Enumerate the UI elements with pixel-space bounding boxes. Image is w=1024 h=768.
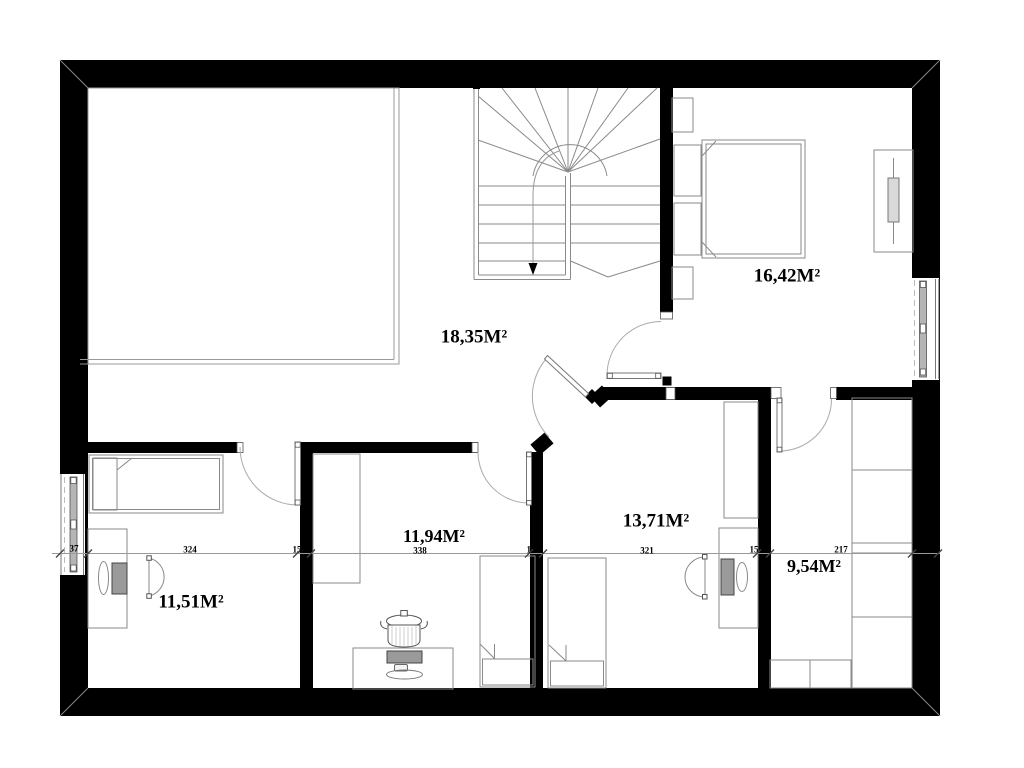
wall-between-room3-closet	[758, 387, 771, 690]
keyboard	[737, 563, 748, 592]
desk-chair	[685, 555, 707, 600]
closet	[313, 454, 360, 583]
pillow	[483, 659, 534, 685]
wall-exterior-bottom	[60, 688, 940, 716]
pillow	[93, 458, 117, 510]
wall-room3-top	[601, 387, 770, 400]
single-bed	[548, 558, 606, 688]
floor-plan-drawing	[0, 0, 1024, 768]
door-walk-in-closet	[777, 398, 832, 452]
wall-rooms-top-left	[88, 442, 238, 453]
monitor	[721, 559, 734, 595]
pillow	[674, 203, 701, 255]
dimension-338: 338	[413, 547, 427, 556]
stair-winder-fan	[478, 88, 660, 172]
nightstand-top	[672, 98, 693, 132]
wardrobe	[724, 402, 758, 518]
room-label-master-bedroom: 16,42M²	[754, 267, 820, 286]
wall-exterior-right	[912, 60, 940, 716]
desk-chair	[381, 611, 428, 648]
stair-walk-line	[533, 151, 559, 272]
furniture-bedroom-middle	[313, 454, 535, 689]
stair-treads-left	[479, 186, 566, 261]
room-label-bedroom-middle: 11,94M²	[403, 527, 465, 545]
dimension-37: 37	[70, 545, 79, 554]
nightstand-bottom	[672, 267, 693, 299]
dimension-321: 321	[640, 547, 654, 556]
open-void-area	[80, 88, 399, 364]
dimension-217: 217	[834, 546, 848, 555]
double-bed	[702, 140, 805, 258]
wall-rooms-top-mid	[300, 442, 478, 453]
window-left	[59, 474, 85, 575]
door-bedroom-middle	[478, 452, 532, 505]
stair-rail-stub	[473, 82, 480, 89]
room-label-bedroom-right: 13,71M²	[623, 512, 689, 531]
stair-treads-right	[571, 186, 661, 277]
room-label-hall: 18,35M²	[441, 328, 507, 347]
single-bed	[480, 556, 535, 687]
furniture-walk-in-closet	[770, 398, 912, 688]
exterior-walls	[60, 60, 940, 716]
room-label-walk-in-closet: 9,54M²	[787, 557, 841, 575]
door-bedroom-left	[240, 442, 301, 505]
door-bedroom-right-diagonal	[532, 356, 588, 438]
wall-between-room1-room2	[300, 442, 313, 690]
window-right	[911, 278, 939, 380]
floor-plan-canvas: 18,35M² 16,42M² 11,51M² 11,94M² 13,71M² …	[0, 0, 1024, 768]
wall-exterior-left	[60, 60, 88, 716]
door-master-bedroom	[607, 322, 661, 379]
dimension-324: 324	[183, 546, 197, 555]
monitor	[387, 651, 422, 663]
door-hinge-block-master	[663, 377, 672, 386]
dresser	[874, 150, 913, 252]
stair-direction-arrow	[529, 263, 538, 275]
dimension-15-c: 15	[750, 546, 759, 555]
pillow	[674, 145, 701, 196]
pillow	[551, 661, 604, 686]
single-bed	[89, 455, 223, 513]
keyboard	[99, 562, 109, 595]
wall-stair-bedroom	[660, 88, 673, 312]
dimension-15-a: 15	[293, 546, 302, 555]
monitor	[112, 563, 127, 594]
staircase	[473, 82, 660, 280]
wall-exterior-top	[60, 60, 940, 88]
dimension-15-b: 15	[527, 546, 536, 555]
room-label-bedroom-left: 11,51M²	[158, 593, 223, 612]
corner-miter-seams	[60, 60, 940, 716]
door-jamb-caps	[237, 312, 837, 453]
